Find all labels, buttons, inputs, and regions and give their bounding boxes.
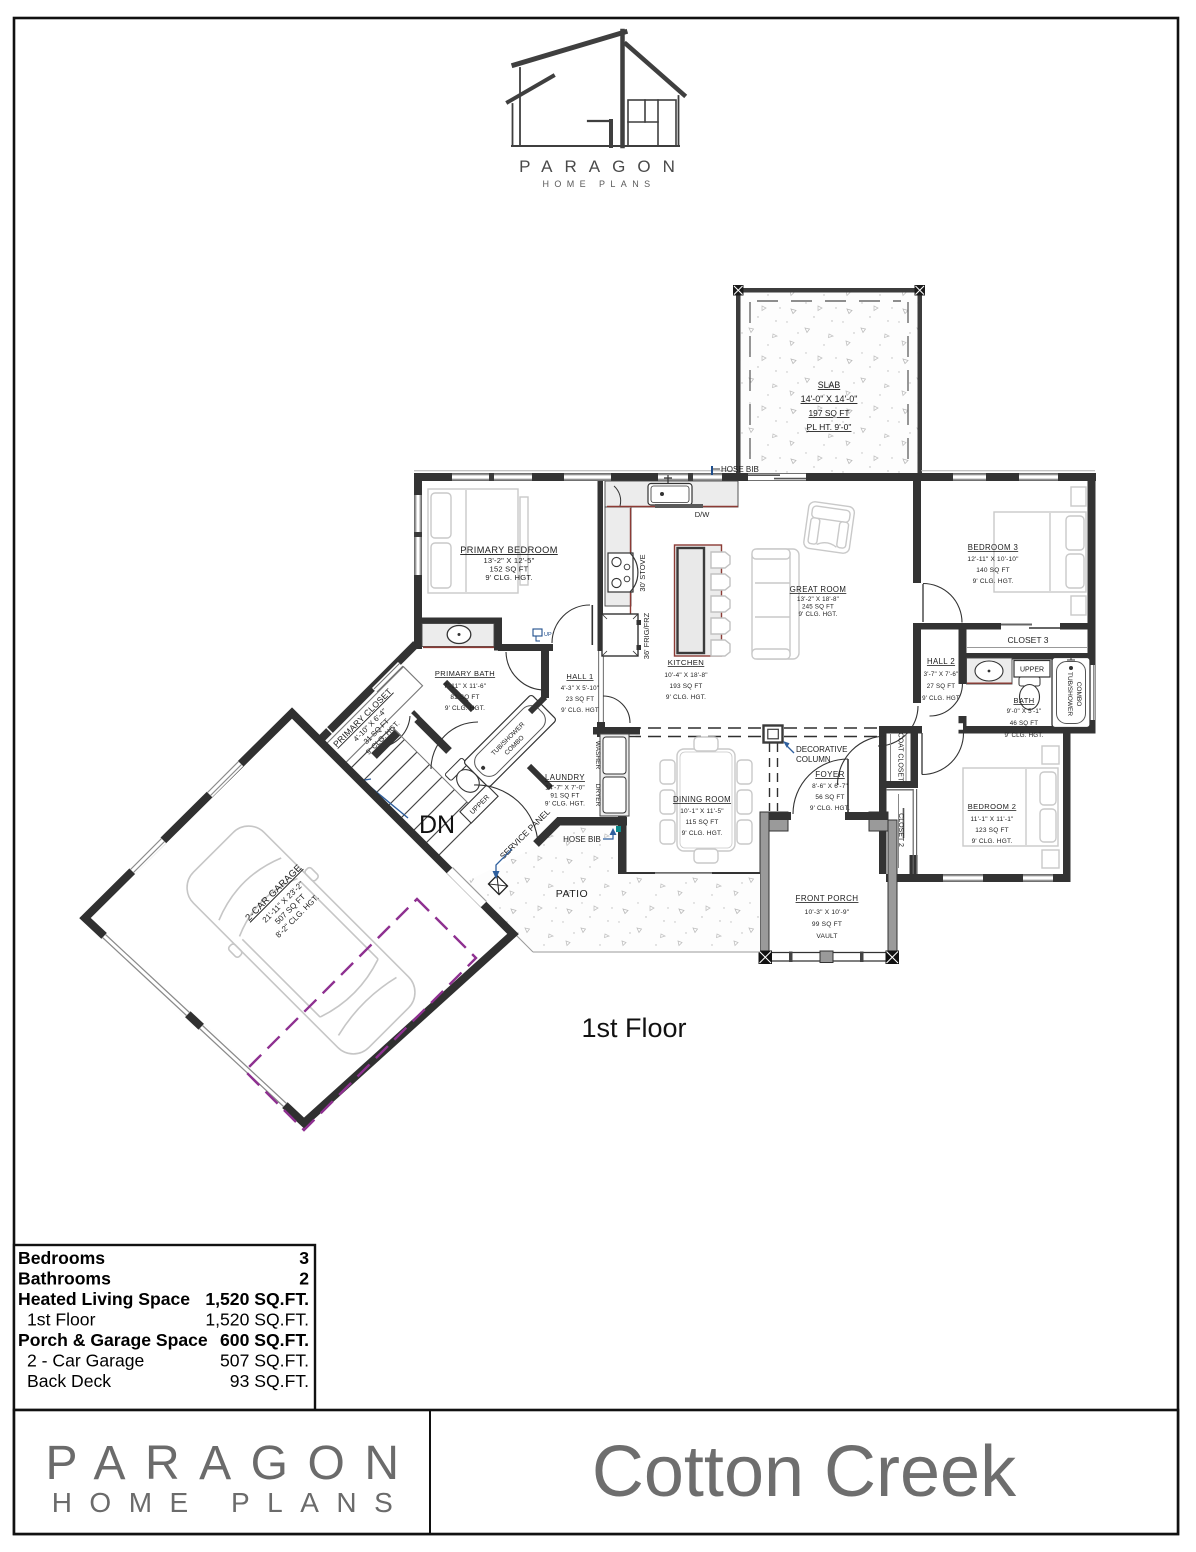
svg-text:UPPER: UPPER bbox=[1020, 667, 1044, 674]
svg-text:140 SQ FT: 140 SQ FT bbox=[976, 567, 1010, 574]
svg-text:BATH: BATH bbox=[1013, 696, 1034, 705]
svg-text:10'-4" X 18'-8": 10'-4" X 18'-8" bbox=[664, 672, 707, 679]
svg-text:CLOSET 3: CLOSET 3 bbox=[1008, 635, 1049, 645]
svg-text:3'-7" X 7'-6": 3'-7" X 7'-6" bbox=[924, 671, 959, 678]
svg-text:Heated Living Space: Heated Living Space bbox=[18, 1289, 190, 1309]
svg-text:2 - Car Garage: 2 - Car Garage bbox=[27, 1351, 144, 1371]
svg-text:PRIMARY BEDROOM: PRIMARY BEDROOM bbox=[460, 545, 558, 555]
svg-text:PL HT. 9'-0": PL HT. 9'-0" bbox=[807, 422, 852, 432]
svg-text:HOSE BIB: HOSE BIB bbox=[563, 835, 601, 844]
svg-text:GREAT ROOM: GREAT ROOM bbox=[790, 585, 847, 594]
svg-text:12'-11" X 10'-10": 12'-11" X 10'-10" bbox=[967, 556, 1019, 563]
svg-text:TUB/SHOWER: TUB/SHOWER bbox=[1066, 672, 1073, 716]
svg-text:30' STOVE: 30' STOVE bbox=[638, 554, 647, 591]
svg-text:HOME PLANS: HOME PLANS bbox=[52, 1487, 411, 1518]
svg-text:Bedrooms: Bedrooms bbox=[18, 1248, 105, 1268]
svg-text:7'-11" X 11'-6": 7'-11" X 11'-6" bbox=[444, 683, 486, 690]
svg-text:23 SQ FT: 23 SQ FT bbox=[566, 696, 594, 703]
svg-text:99 SQ FT: 99 SQ FT bbox=[812, 921, 842, 928]
svg-text:LAUNDRY: LAUNDRY bbox=[545, 773, 585, 782]
svg-text:13'-2" X 18'-8": 13'-2" X 18'-8" bbox=[797, 596, 839, 603]
svg-text:245 SQ FT: 245 SQ FT bbox=[802, 604, 834, 611]
svg-text:9' CLG. HGT.: 9' CLG. HGT. bbox=[485, 573, 532, 582]
svg-text:Cotton Creek: Cotton Creek bbox=[592, 1432, 1017, 1512]
svg-text:36' FRIG/FRZ: 36' FRIG/FRZ bbox=[642, 612, 651, 659]
svg-text:VAULT: VAULT bbox=[816, 933, 837, 940]
svg-text:91 SQ FT: 91 SQ FT bbox=[550, 793, 579, 800]
svg-text:9' CLG. HGT.: 9' CLG. HGT. bbox=[445, 705, 485, 712]
svg-text:PATIO: PATIO bbox=[556, 888, 588, 900]
svg-text:81 SQ FT: 81 SQ FT bbox=[450, 694, 479, 701]
svg-text:9' CLG. HGT.: 9' CLG. HGT. bbox=[1005, 732, 1044, 739]
svg-text:DN: DN bbox=[419, 811, 455, 839]
svg-text:DINING ROOM: DINING ROOM bbox=[673, 795, 731, 804]
svg-text:CLOSET 2: CLOSET 2 bbox=[897, 813, 904, 847]
svg-text:600 SQ.FT.: 600 SQ.FT. bbox=[220, 1330, 309, 1350]
svg-text:DECORATIVE: DECORATIVE bbox=[796, 745, 847, 754]
svg-text:Porch & Garage Space: Porch & Garage Space bbox=[18, 1330, 208, 1350]
svg-text:DRYER: DRYER bbox=[594, 784, 601, 807]
svg-text:197 SQ FT: 197 SQ FT bbox=[809, 408, 850, 418]
svg-text:9' CLG. HGT.: 9' CLG. HGT. bbox=[545, 801, 585, 808]
svg-text:HALL 1: HALL 1 bbox=[566, 672, 593, 681]
svg-text:PARAGON: PARAGON bbox=[519, 157, 687, 176]
svg-text:COMBO: COMBO bbox=[1075, 682, 1082, 707]
svg-text:11'-1" X 11'-1": 11'-1" X 11'-1" bbox=[970, 816, 1014, 823]
svg-text:123 SQ FT: 123 SQ FT bbox=[975, 827, 1009, 834]
svg-text:9' CLG. HGT.: 9' CLG. HGT. bbox=[799, 611, 838, 618]
svg-text:PRIMARY BATH: PRIMARY BATH bbox=[435, 669, 495, 678]
svg-text:WASHER: WASHER bbox=[594, 741, 601, 770]
svg-text:COLUMN: COLUMN bbox=[796, 755, 831, 764]
svg-text:PARAGON: PARAGON bbox=[46, 1437, 419, 1490]
svg-text:9' CLG. HGT.: 9' CLG. HGT. bbox=[666, 694, 706, 701]
svg-text:8'-6" X 6'-7": 8'-6" X 6'-7" bbox=[812, 783, 848, 790]
svg-text:BEDROOM 2: BEDROOM 2 bbox=[968, 802, 1017, 811]
svg-text:1st Floor: 1st Floor bbox=[581, 1013, 686, 1043]
svg-text:10'-3" X 10'-9": 10'-3" X 10'-9" bbox=[805, 909, 850, 916]
svg-text:FRONT PORCH: FRONT PORCH bbox=[796, 894, 859, 903]
svg-text:9' CLG. HGT.: 9' CLG. HGT. bbox=[810, 805, 850, 812]
svg-text:9'-0" X 5'-1": 9'-0" X 5'-1" bbox=[1007, 708, 1042, 715]
svg-text:93 SQ.FT.: 93 SQ.FT. bbox=[230, 1371, 309, 1391]
svg-text:HOME PLANS: HOME PLANS bbox=[542, 179, 655, 189]
svg-text:10'-1" X 11'-5": 10'-1" X 11'-5" bbox=[680, 808, 724, 815]
svg-text:D/W: D/W bbox=[695, 510, 711, 519]
svg-text:Back Deck: Back Deck bbox=[27, 1371, 111, 1391]
svg-text:9' CLG. HGT.: 9' CLG. HGT. bbox=[973, 578, 1014, 585]
svg-text:1st Floor: 1st Floor bbox=[27, 1310, 96, 1330]
svg-text:COAT CLOSET: COAT CLOSET bbox=[897, 733, 904, 782]
svg-text:115 SQ FT: 115 SQ FT bbox=[685, 819, 718, 826]
svg-text:14'-7" X 7'-0": 14'-7" X 7'-0" bbox=[545, 785, 585, 792]
svg-text:1,520 SQ.FT.: 1,520 SQ.FT. bbox=[205, 1310, 309, 1330]
svg-text:9' CLG. HGT.: 9' CLG. HGT. bbox=[972, 838, 1013, 845]
svg-text:2: 2 bbox=[299, 1269, 309, 1289]
svg-text:46 SQ FT: 46 SQ FT bbox=[1010, 720, 1038, 727]
svg-text:193 SQ FT: 193 SQ FT bbox=[669, 683, 702, 690]
svg-text:FOYER: FOYER bbox=[815, 770, 845, 779]
svg-text:9' CLG. HGT.: 9' CLG. HGT. bbox=[682, 830, 723, 837]
svg-text:UP: UP bbox=[544, 632, 552, 638]
svg-text:KITCHEN: KITCHEN bbox=[668, 658, 705, 667]
svg-text:9' CLG. HGT: 9' CLG. HGT bbox=[561, 707, 599, 714]
svg-text:SLAB: SLAB bbox=[818, 380, 841, 390]
svg-text:3: 3 bbox=[299, 1248, 309, 1268]
svg-text:56 SQ FT: 56 SQ FT bbox=[815, 794, 844, 801]
svg-text:1,520 SQ.FT.: 1,520 SQ.FT. bbox=[205, 1289, 309, 1309]
svg-text:HALL 2: HALL 2 bbox=[927, 657, 955, 666]
svg-text:14'-0" X 14'-0": 14'-0" X 14'-0" bbox=[801, 394, 858, 404]
svg-text:HOSE BIB: HOSE BIB bbox=[721, 465, 759, 474]
svg-text:27 SQ FT: 27 SQ FT bbox=[927, 683, 955, 690]
svg-text:Bathrooms: Bathrooms bbox=[18, 1269, 111, 1289]
svg-text:BEDROOM 3: BEDROOM 3 bbox=[968, 543, 1018, 552]
svg-text:507 SQ.FT.: 507 SQ.FT. bbox=[220, 1351, 309, 1371]
svg-text:4'-3" X 5'-10": 4'-3" X 5'-10" bbox=[561, 685, 599, 692]
svg-text:9' CLG. HGT: 9' CLG. HGT bbox=[922, 695, 960, 702]
